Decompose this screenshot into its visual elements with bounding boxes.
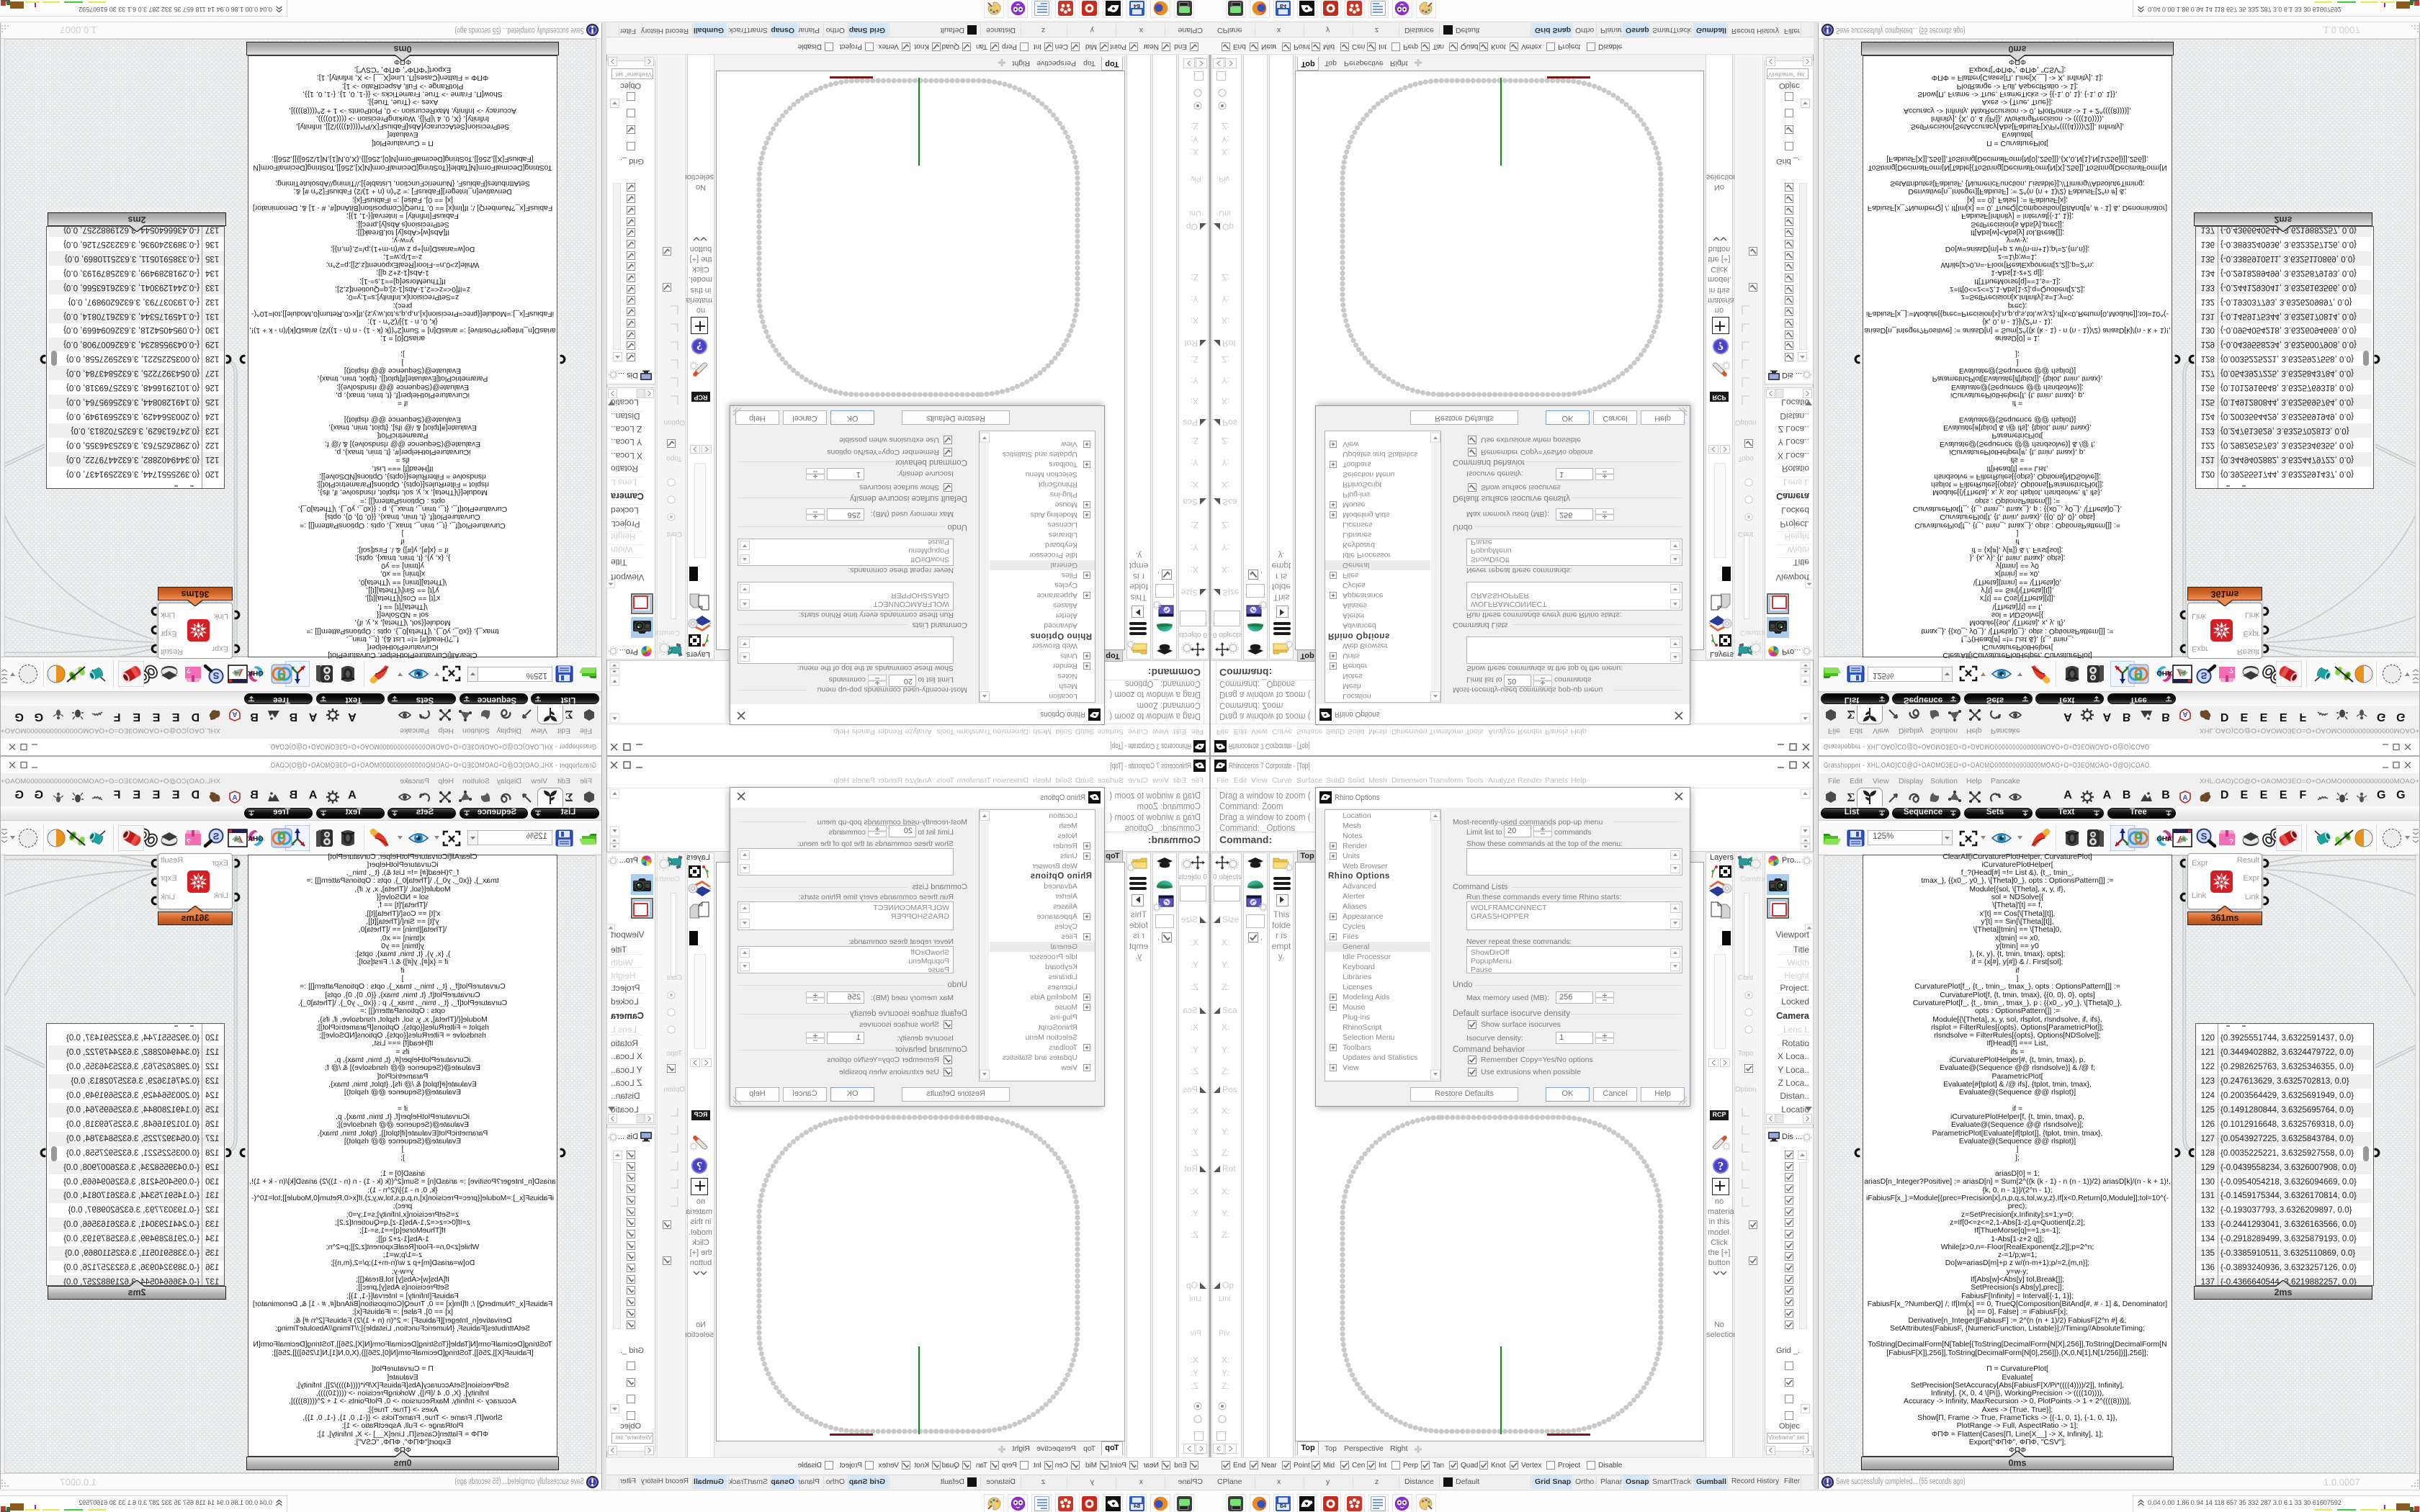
svg-text:GHA: GHA [2156,835,2172,843]
svg-text:A: A [232,794,237,802]
svg-text:?: ? [2229,666,2233,674]
svg-text:Σ: Σ [565,791,573,804]
svg-text:?: ? [696,1159,703,1173]
svg-text:Σ: Σ [565,708,573,721]
svg-text:GHA: GHA [248,669,263,677]
svg-text:S: S [2201,670,2208,681]
svg-text:Σ: Σ [1847,791,1855,804]
svg-text:?: ? [187,838,191,846]
svg-text:GHA: GHA [248,835,263,843]
svg-text:Σ: Σ [1847,708,1855,721]
svg-text:A: A [2183,710,2188,718]
svg-text:S: S [212,831,219,842]
svg-text:A: A [2183,794,2188,802]
svg-text:S: S [2201,831,2208,842]
svg-text:GHA: GHA [2156,669,2172,677]
svg-text:?: ? [2229,838,2233,846]
svg-text:S: S [212,670,219,681]
svg-text:A: A [232,710,237,718]
svg-text:?: ? [1718,339,1724,353]
svg-text:?: ? [187,666,191,674]
svg-text:?: ? [1718,1159,1724,1173]
svg-text:?: ? [696,339,703,353]
